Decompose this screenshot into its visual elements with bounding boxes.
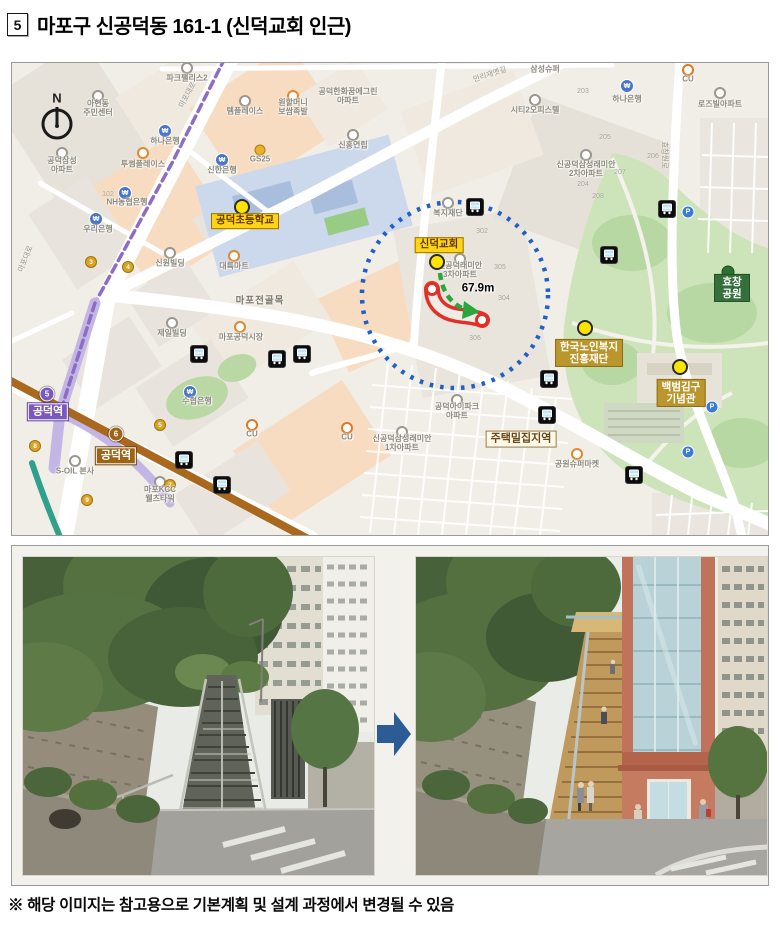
bus-glyph bbox=[541, 409, 553, 421]
subway-exit-badge: 9 bbox=[81, 494, 93, 506]
after-photo bbox=[416, 557, 767, 875]
block-number: 208 bbox=[592, 193, 604, 201]
transform-arrow-icon bbox=[377, 712, 411, 756]
store-ring-icon bbox=[571, 448, 583, 460]
kim-koo-museum-marker-dot bbox=[672, 359, 688, 375]
subway-exit-badge: 3 bbox=[85, 256, 97, 268]
page-title: 마포구 신공덕동 161-1 (신덕교회 인근) bbox=[37, 10, 351, 39]
map-minor-label: 신공덕삼성래미안 2차아파트 bbox=[557, 160, 616, 178]
map-minor-label: 공원슈퍼마켓 bbox=[555, 459, 599, 468]
subway-exit-badge: 5 bbox=[154, 419, 166, 431]
bank-icon: ₩ bbox=[118, 186, 132, 200]
block-number: 306 bbox=[469, 335, 481, 343]
bus-stop-icon bbox=[213, 476, 231, 494]
block-number: 205 bbox=[599, 134, 611, 142]
bus-glyph bbox=[296, 348, 308, 360]
block-number: 207 bbox=[614, 169, 626, 177]
poi-ring-icon bbox=[529, 94, 541, 106]
map-minor-label: 공덕한화꿈에그린 아파트 bbox=[319, 87, 378, 105]
bus-stop-icon bbox=[175, 451, 193, 469]
sindeok-church-marker-dot bbox=[429, 254, 445, 270]
map-poi-label-gongdeok-elementary: 공덕초등학교 bbox=[211, 213, 279, 229]
map-poi-label-korea-senior-welfare-foundation: 한국노인복지 진흥재단 bbox=[555, 339, 623, 367]
map-minor-label: 투썸플레이스 bbox=[121, 159, 165, 168]
compass-north-label: N bbox=[52, 91, 61, 106]
bus-glyph bbox=[271, 353, 283, 365]
block-number: 203 bbox=[577, 88, 589, 96]
map-minor-label: 복지재단 bbox=[433, 208, 462, 217]
bus-stop-icon bbox=[600, 246, 618, 264]
map-minor-label: 시티2오피스텔 bbox=[511, 105, 560, 114]
poi-ring-icon bbox=[166, 317, 178, 329]
bus-glyph bbox=[603, 249, 615, 261]
poi-ring-icon bbox=[92, 90, 104, 102]
hyochang-park-marker-dot bbox=[722, 266, 735, 279]
map-minor-label: 신원빌딩 bbox=[155, 258, 184, 267]
poi-ring-icon bbox=[714, 87, 726, 99]
bus-glyph bbox=[628, 469, 640, 481]
bank-icon: ₩ bbox=[620, 79, 634, 93]
bank-icon: ₩ bbox=[89, 212, 103, 226]
poi-ring-icon bbox=[56, 147, 68, 159]
bus-glyph bbox=[661, 203, 673, 215]
parking-icon: P bbox=[682, 206, 695, 219]
block-number: 304 bbox=[498, 295, 510, 303]
map-overlay: N 67.9m ₩₩₩₩₩₩PPP34857956102302305304306… bbox=[12, 63, 768, 535]
title-row: 5 마포구 신공덕동 161-1 (신덕교회 인근) bbox=[7, 10, 351, 39]
store-ring-icon bbox=[228, 250, 240, 262]
poi-ring-icon bbox=[454, 253, 466, 265]
bus-glyph bbox=[178, 454, 190, 466]
map-poi-label-hyochang-park: 효창공원 bbox=[714, 274, 750, 302]
road-name-label: 효창원로 bbox=[660, 141, 669, 169]
poi-ring-icon bbox=[442, 197, 454, 209]
map-minor-label: 로즈빌아파트 bbox=[698, 99, 742, 108]
poi-ring-icon bbox=[69, 455, 81, 467]
gs25-store-icon bbox=[255, 145, 266, 156]
area-name-label: 마포전골목 bbox=[236, 297, 285, 308]
poi-ring-icon bbox=[347, 129, 359, 141]
poi-ring-icon bbox=[164, 247, 176, 259]
store-ring-icon bbox=[287, 90, 299, 102]
map-minor-label: S-OIL 본사 bbox=[56, 466, 94, 475]
road-name-label: 마포대로 bbox=[17, 245, 35, 274]
map-minor-label: 우리은행 bbox=[83, 224, 112, 233]
bus-glyph bbox=[469, 201, 481, 213]
bus-glyph bbox=[216, 479, 228, 491]
before-photo bbox=[23, 557, 374, 875]
map-minor-label: 하나은행 bbox=[612, 94, 641, 103]
block-number: 102 bbox=[102, 191, 114, 199]
subway-exit-badge: 4 bbox=[122, 261, 134, 273]
subway-exit-badge: 8 bbox=[29, 440, 41, 452]
bank-icon: ₩ bbox=[183, 385, 197, 399]
map-poi-label-gongdeok-station-line5: 공덕역 bbox=[28, 403, 68, 420]
map-minor-label: 대륙마트 bbox=[219, 261, 248, 270]
parking-icon: P bbox=[682, 446, 695, 459]
poi-ring-icon bbox=[580, 149, 592, 161]
bus-stop-icon bbox=[540, 370, 558, 388]
bus-stop-icon bbox=[538, 406, 556, 424]
cu-store-icon bbox=[246, 419, 258, 431]
item-number-box: 5 bbox=[7, 13, 28, 36]
map-minor-label: 마포공덕시장 bbox=[219, 332, 263, 341]
cu-store-icon bbox=[341, 422, 353, 434]
bus-stop-icon bbox=[293, 345, 311, 363]
block-number: 302 bbox=[476, 228, 488, 236]
store-ring-icon bbox=[137, 147, 149, 159]
korea-senior-welfare-foundation-marker-dot bbox=[577, 320, 593, 336]
poi-ring-icon bbox=[181, 62, 193, 74]
before-after-panel bbox=[11, 545, 769, 886]
parking-icon: P bbox=[706, 401, 719, 414]
block-number: 305 bbox=[494, 264, 506, 272]
subway-line-badge: 6 bbox=[109, 427, 124, 442]
map-minor-label: 템플레이스 bbox=[227, 106, 264, 115]
subway-exit-badge: 7 bbox=[164, 479, 176, 491]
location-map: N 67.9m ₩₩₩₩₩₩PPP34857956102302305304306… bbox=[11, 62, 769, 536]
poi-ring-icon bbox=[239, 95, 251, 107]
map-poi-label-kim-koo-museum: 백범김구 기념관 bbox=[657, 379, 706, 407]
distance-label: 67.9m bbox=[462, 282, 495, 295]
map-minor-label: GS25 bbox=[250, 154, 270, 163]
bus-stop-icon bbox=[625, 466, 643, 484]
store-ring-icon bbox=[234, 321, 246, 333]
road-name-label: 만리재옛길 bbox=[472, 66, 507, 85]
map-poi-label-gongdeok-station-line6: 공덕역 bbox=[96, 447, 136, 464]
footnote: ※ 해당 이미지는 참고용으로 기본계획 및 설계 과정에서 변경될 수 있음 bbox=[8, 893, 454, 915]
map-minor-label: 파크팰리스2 bbox=[166, 73, 207, 82]
map-poi-label-dense-housing-area: 주택밀집지역 bbox=[486, 431, 557, 448]
bank-icon: ₩ bbox=[158, 124, 172, 138]
bus-glyph bbox=[543, 373, 555, 385]
bus-stop-icon bbox=[268, 350, 286, 368]
bus-stop-icon bbox=[658, 200, 676, 218]
map-minor-label: 제일빌딩 bbox=[157, 328, 186, 337]
bus-stop-icon bbox=[190, 345, 208, 363]
map-minor-label: 신흥연립 bbox=[338, 140, 367, 149]
report-page: 5 마포구 신공덕동 161-1 (신덕교회 인근) bbox=[0, 0, 780, 929]
bank-icon: ₩ bbox=[215, 153, 229, 167]
gongdeok-elementary-marker-dot bbox=[234, 199, 250, 215]
poi-ring-icon bbox=[396, 426, 408, 438]
cu-store-icon bbox=[682, 64, 694, 76]
block-number: 204 bbox=[577, 181, 589, 189]
bus-glyph bbox=[193, 348, 205, 360]
map-minor-label: 삼성슈퍼 bbox=[530, 64, 559, 73]
road-name-label: 마포대로 bbox=[178, 81, 199, 109]
block-number: 206 bbox=[647, 153, 659, 161]
map-poi-label-sindeok-church: 신덕교회 bbox=[415, 237, 464, 253]
subway-line-badge: 5 bbox=[40, 387, 55, 402]
poi-ring-icon bbox=[451, 394, 463, 406]
bus-stop-icon bbox=[466, 198, 484, 216]
